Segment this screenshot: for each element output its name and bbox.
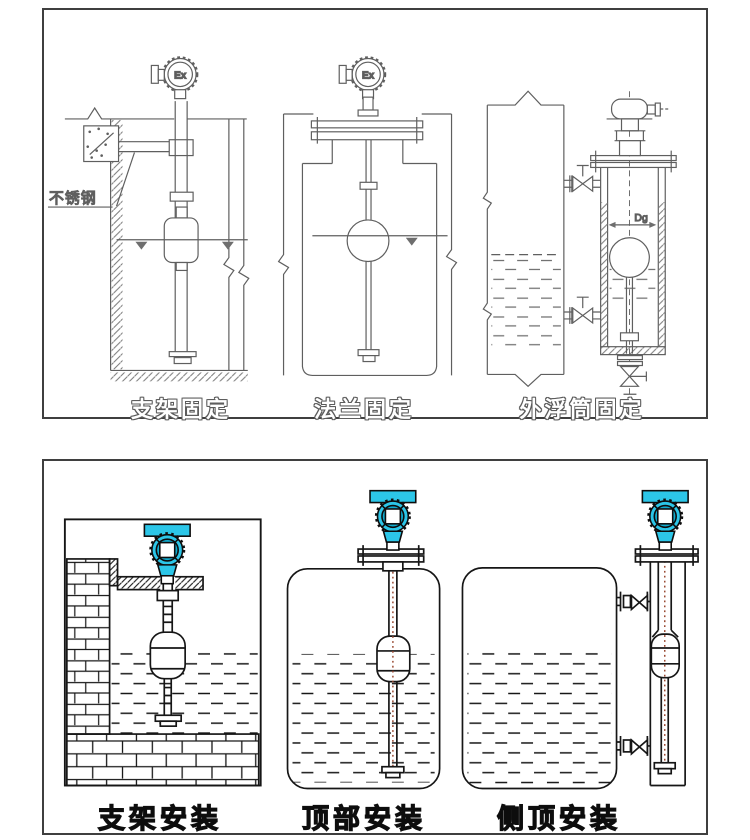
rod-end-cap	[654, 763, 675, 769]
installation-methods-panel: 支架安装 顶部安装 侧顶安装	[42, 459, 708, 835]
water-level-mark	[135, 242, 147, 250]
ball-float	[610, 238, 650, 278]
rod-collar	[360, 182, 377, 189]
flange-fixing-diagram: Ex	[279, 57, 457, 375]
caption-flange-fixing: 法兰固定	[314, 392, 414, 424]
pipe-clamp	[169, 140, 193, 156]
float-neck-bottom	[176, 263, 187, 271]
rod-end-cap	[382, 767, 404, 773]
mount-block	[383, 562, 403, 571]
caption-top-install: 顶部安装	[302, 797, 426, 836]
water-level-mark	[222, 242, 234, 250]
flange-plate-bottom	[311, 132, 422, 140]
caption-external-chamber-fixing: 外浮筒固定	[519, 392, 644, 424]
tank-top-edge	[65, 108, 247, 119]
bracket-arm	[119, 142, 170, 152]
water	[292, 654, 434, 783]
transmitter-head-icon	[370, 491, 416, 550]
installation-diagram-sheet: Ex 不锈钢	[0, 0, 750, 840]
rod-end-cap	[155, 715, 181, 721]
pipe-collar	[170, 192, 193, 201]
tank-wall-right-outer	[239, 119, 249, 371]
head-collar	[358, 110, 378, 116]
rod-end-cap	[363, 356, 375, 362]
ball-float	[347, 220, 389, 262]
float	[150, 632, 185, 679]
tank-water	[491, 254, 561, 353]
tank-wall-right-outer	[447, 114, 457, 375]
float-neck-top	[176, 207, 187, 218]
brick-wall	[67, 559, 110, 734]
fixing-methods-drawing: Ex 不锈钢	[44, 10, 706, 417]
fixing-methods-panel: Ex 不锈钢	[42, 8, 708, 419]
lower-valve-icon	[617, 736, 651, 756]
tank-bottom	[302, 366, 436, 375]
upper-valve-icon	[617, 592, 651, 612]
pipe-end-cap	[174, 358, 191, 364]
small-transmitter-head-icon	[607, 99, 671, 155]
caption-bracket-fixing: 支架固定	[131, 392, 231, 424]
caption-side-top-install: 侧顶安装	[497, 797, 621, 836]
rod-ticks	[163, 606, 172, 622]
rod-collar	[621, 333, 639, 341]
bracket-angle	[110, 559, 118, 586]
rod-end-cap	[160, 721, 176, 726]
installation-methods-drawing	[44, 461, 706, 833]
chamber-wall-hatch	[601, 202, 608, 347]
flange-plate-top	[311, 121, 422, 128]
caption-bracket-install: 支架安装	[98, 797, 222, 836]
side-top-install-diagram	[462, 491, 698, 789]
drain-valve-icon	[618, 356, 647, 395]
float-rod-lower	[366, 262, 371, 350]
tank-wall-left-outer	[279, 114, 289, 375]
chamber-wall-hatch	[658, 202, 665, 347]
dg-dimension: Dg	[609, 213, 657, 228]
float	[377, 636, 410, 682]
rod-end-cap	[358, 350, 379, 356]
rod-end-cap	[386, 773, 400, 778]
floor-hatch	[111, 372, 248, 381]
float-rod-upper	[366, 140, 371, 220]
external-chamber-fixing-diagram: Dg	[483, 91, 676, 400]
chamber-flange	[591, 163, 676, 168]
ex-mark: Ex	[174, 70, 187, 81]
tank-wall-left	[483, 105, 491, 374]
diameter-label: Dg	[634, 213, 648, 224]
tank-top-break-edge	[487, 91, 564, 105]
water	[467, 650, 611, 784]
outlet-valve-icon	[564, 297, 601, 324]
flange	[635, 556, 698, 562]
transmitter-head-icon	[144, 524, 190, 583]
transmitter-head-icon	[642, 491, 688, 550]
tank-bottom-break-edge	[487, 374, 564, 386]
pipe-end-cap	[169, 352, 196, 357]
head-neck	[363, 97, 373, 110]
material-label: 不锈钢	[49, 190, 97, 207]
flange	[358, 556, 424, 562]
bracket-install-diagram	[65, 519, 261, 785]
brick-floor	[67, 734, 259, 785]
water-level-mark	[406, 238, 418, 246]
top-install-diagram	[288, 491, 440, 789]
rod-collar	[157, 591, 178, 601]
chamber-flange	[591, 156, 676, 161]
bracket-fixing-diagram: Ex 不锈钢	[48, 57, 249, 381]
rod-end-cap	[658, 769, 671, 774]
ex-mark: Ex	[362, 70, 375, 81]
